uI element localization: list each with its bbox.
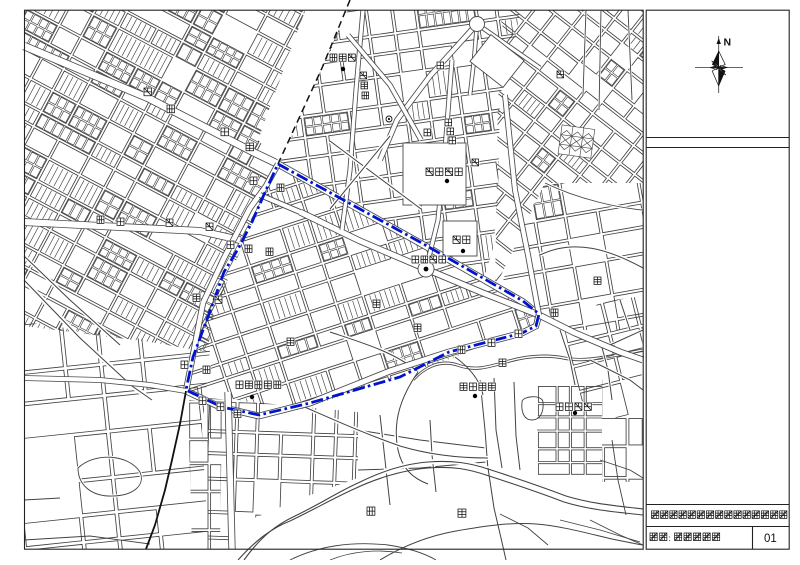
svg-text:01: 01 <box>764 533 777 545</box>
svg-text::: : <box>669 533 671 543</box>
svg-text:N: N <box>724 37 732 49</box>
